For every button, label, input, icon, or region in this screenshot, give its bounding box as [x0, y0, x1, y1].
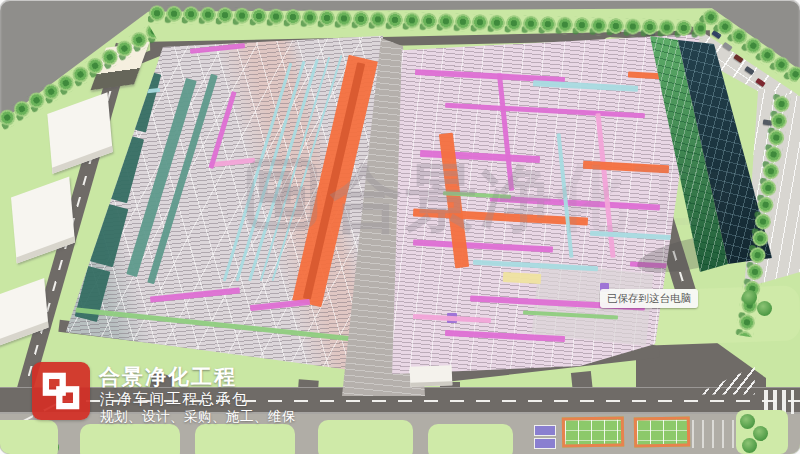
- tree: [757, 301, 772, 316]
- pipe-run: [503, 272, 541, 284]
- pipe-run: [303, 62, 365, 300]
- tree: [742, 290, 757, 305]
- pipe-run: [208, 91, 236, 169]
- pipe-run: [413, 208, 588, 225]
- pipe-run: [445, 103, 645, 118]
- pipe-run: [473, 260, 598, 272]
- h-monogram-icon: [40, 370, 82, 412]
- company-tagline: 洁净车间工程总承包: [100, 390, 249, 409]
- sports-court: [634, 417, 691, 448]
- lawn-patch: [80, 424, 180, 454]
- pipe-run: [413, 239, 553, 252]
- sports-court: [562, 416, 625, 447]
- pipe-run: [76, 307, 355, 341]
- company-name: 合景净化工程: [99, 363, 237, 391]
- pipe-run: [420, 150, 540, 163]
- pipe-run: [497, 73, 514, 191]
- company-logo: [32, 362, 90, 420]
- parking-ticks: [692, 420, 738, 448]
- gatehouse: [410, 365, 453, 386]
- company-services: 规划、设计、采购、施工、维保: [100, 408, 296, 426]
- tree: [753, 426, 768, 441]
- lawn-patch: [0, 420, 58, 454]
- lawn-patch: [318, 420, 413, 454]
- pipe-run: [250, 299, 310, 311]
- pipe-run: [533, 80, 638, 91]
- pipe-run: [150, 287, 240, 302]
- parking-stall-purple: [534, 438, 556, 449]
- pipe-run: [556, 133, 573, 258]
- lawn-patch: [195, 424, 295, 454]
- parking-stall-purple: [534, 425, 556, 436]
- tree: [740, 414, 755, 429]
- bim-campus-render: 合景净化工程 已保存到这台电脑 合景净化工程 洁净车间工程总承包 规划、设计、采…: [0, 0, 800, 454]
- saved-tooltip: 已保存到这台电脑: [600, 289, 698, 308]
- tree: [742, 438, 757, 453]
- lawn-patch: [428, 424, 513, 454]
- pipe-run: [210, 158, 255, 168]
